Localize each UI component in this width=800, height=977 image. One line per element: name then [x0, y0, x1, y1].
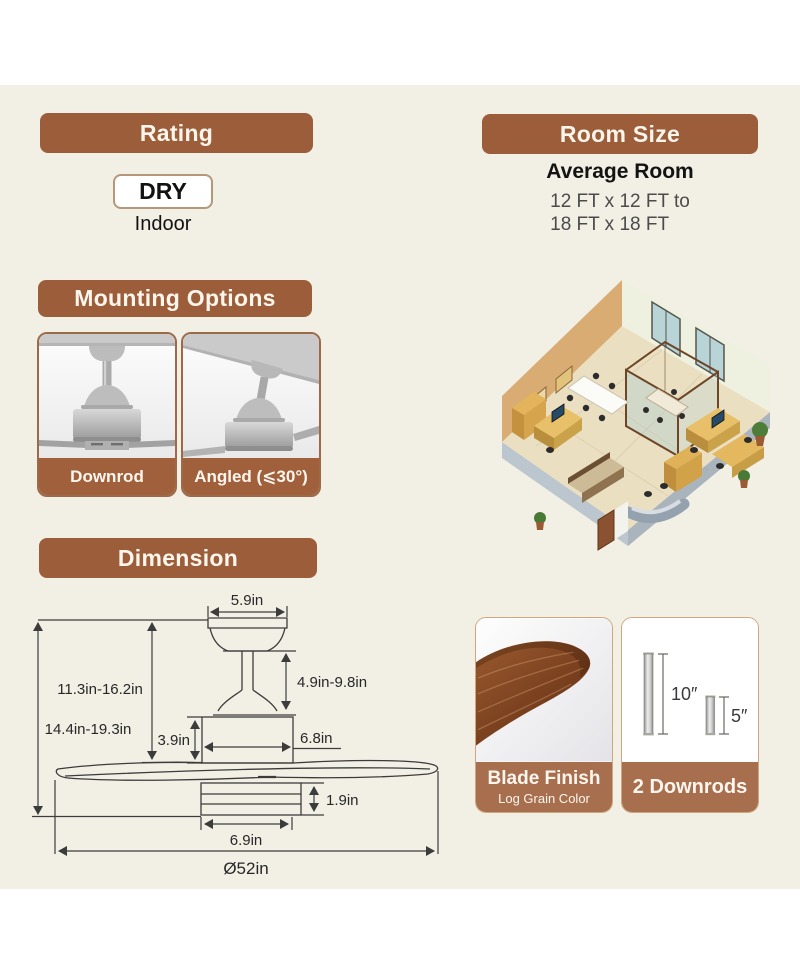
angled-mount-illustration	[183, 334, 319, 458]
room-size-subtitle: Average Room	[482, 160, 758, 184]
blade-finish-image	[476, 618, 612, 762]
canopy-width-label: 5.9in	[231, 592, 264, 609]
downrods-label: 2 Downrods	[622, 762, 758, 812]
downrods-image: 10″ 5″	[622, 618, 758, 762]
downrod-mount-illustration	[39, 334, 175, 458]
mounting-card-downrod: Downrod	[37, 332, 177, 497]
dry-rating-badge: DRY	[113, 174, 213, 209]
rating-block: DRY Indoor	[40, 174, 286, 236]
dimension-header: Dimension	[39, 538, 317, 578]
dimension-labels: 5.9in 4.9in-9.8in 11.3in-16.2in 14.4in-1…	[45, 592, 367, 878]
dimension-header-label: Dimension	[118, 545, 238, 572]
product-infographic: Rating DRY Indoor Room Size Average Room…	[0, 0, 800, 977]
blade-finish-title: Blade Finish	[488, 768, 601, 791]
angled-label: Angled (⩽30°)	[183, 458, 319, 495]
dimension-diagram: 5.9in 4.9in-9.8in 11.3in-16.2in 14.4in-1…	[30, 590, 460, 892]
downrod-label: Downrod	[39, 458, 175, 495]
blade-span-label: Ø52in	[223, 859, 268, 878]
rating-header-label: Rating	[140, 120, 213, 147]
motor-height-label: 3.9in	[157, 732, 190, 749]
five-inch-label: 5″	[731, 706, 748, 726]
light-width-label: 6.9in	[230, 832, 263, 849]
downrod-label-text: Downrod	[70, 467, 144, 487]
room-size-range: 12 FT x 12 FT to 18 FT x 18 FT	[550, 190, 690, 236]
angled-label-text: Angled (⩽30°)	[194, 467, 308, 487]
blade-finish-label: Blade Finish Log Grain Color	[476, 762, 612, 812]
total-height-label: 14.4in-19.3in	[45, 721, 132, 738]
downrods-card: 10″ 5″ 2 Downrods	[621, 617, 759, 813]
room-size-range-line1: 12 FT x 12 FT to	[550, 190, 690, 213]
room-size-range-line2: 18 FT x 18 FT	[550, 213, 690, 236]
motor-width-label: 6.8in	[300, 730, 333, 747]
blade-finish-subtitle: Log Grain Color	[498, 791, 590, 807]
blade-finish-card: Blade Finish Log Grain Color	[475, 617, 613, 813]
rating-header: Rating	[40, 113, 313, 153]
room-size-block: Average Room 12 FT x 12 FT to 18 FT x 18…	[482, 160, 758, 236]
downrods-title: 2 Downrods	[633, 775, 747, 799]
room-size-header-label: Room Size	[560, 121, 680, 148]
downrod-range-label: 4.9in-9.8in	[297, 674, 367, 691]
ten-inch-label: 10″	[671, 684, 698, 704]
fan-outline	[56, 618, 437, 815]
room-render	[450, 276, 790, 560]
mounting-options-header-label: Mounting Options	[74, 285, 276, 312]
room-size-header: Room Size	[482, 114, 758, 154]
upper-height-label: 11.3in-16.2in	[57, 681, 143, 698]
light-height-label: 1.9in	[326, 792, 359, 809]
mounting-card-angled: Angled (⩽30°)	[181, 332, 321, 497]
indoor-label: Indoor	[40, 213, 286, 236]
mounting-options-header: Mounting Options	[38, 280, 312, 317]
